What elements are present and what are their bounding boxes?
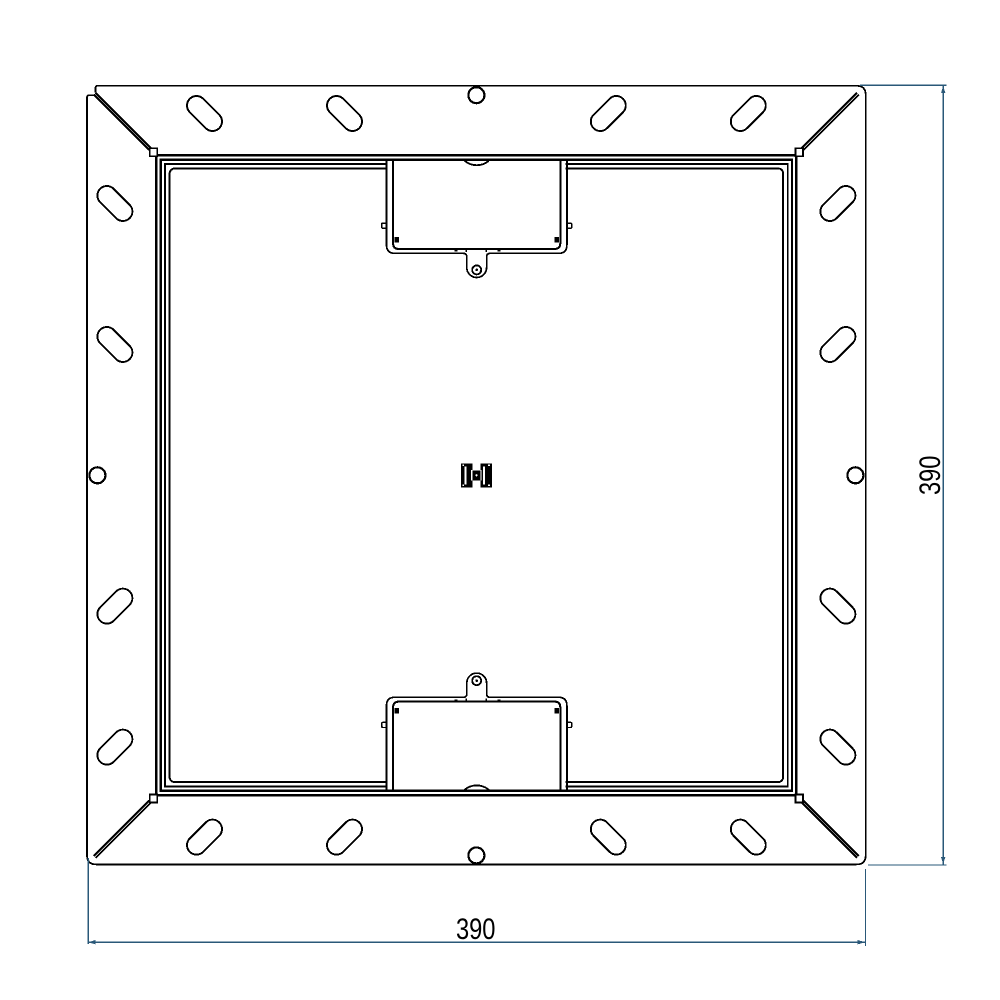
svg-text:390: 390 [914, 456, 947, 496]
svg-text:390: 390 [456, 913, 496, 946]
